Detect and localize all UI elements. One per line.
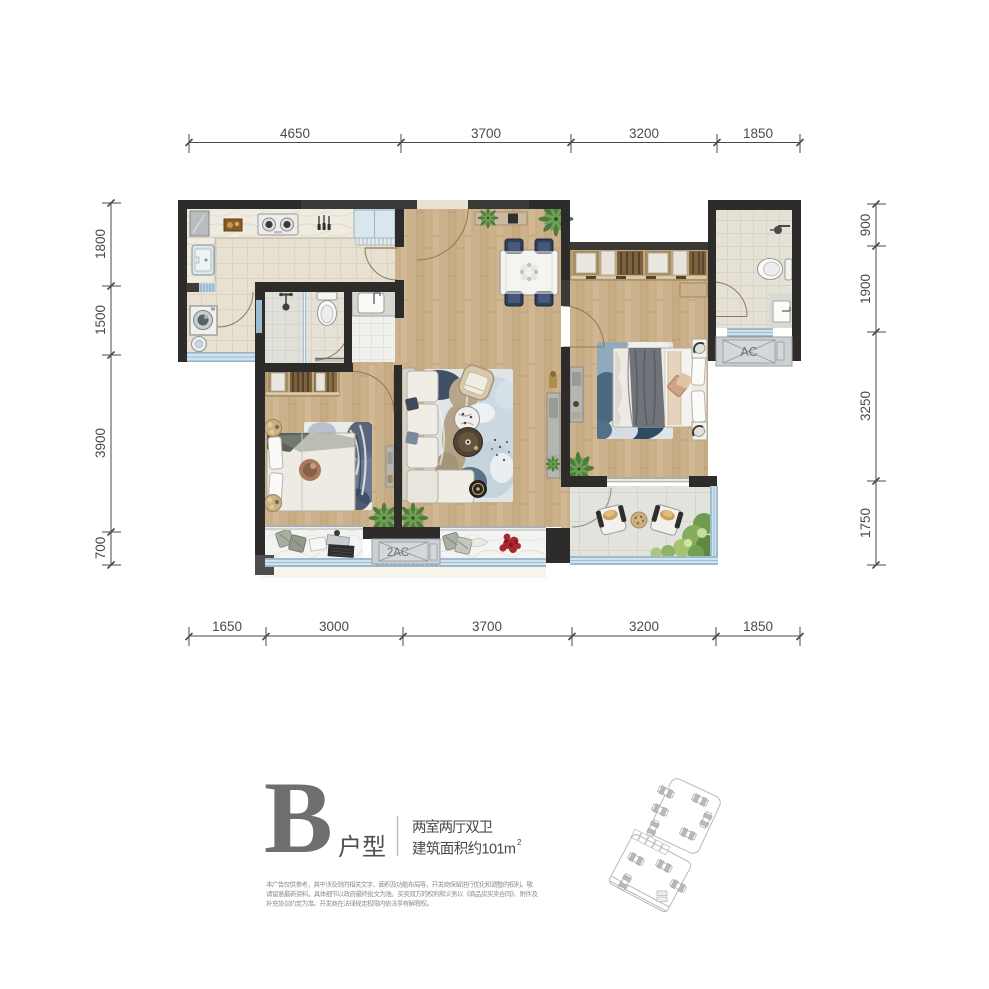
svg-text:3000: 3000: [319, 619, 349, 634]
svg-text:1650: 1650: [212, 619, 242, 634]
svg-text:900: 900: [858, 214, 873, 237]
svg-text:3700: 3700: [471, 126, 501, 141]
svg-text:3250: 3250: [858, 391, 873, 421]
svg-text:3700: 3700: [472, 619, 502, 634]
svg-text:1750: 1750: [858, 508, 873, 538]
svg-text:两室两厅双卫: 两室两厅双卫: [412, 819, 493, 836]
svg-text:2AC: 2AC: [387, 547, 409, 559]
svg-text:建筑面积约101m: 建筑面积约101m: [412, 841, 516, 858]
svg-text:户型: 户型: [338, 834, 386, 861]
svg-text:3200: 3200: [629, 126, 659, 141]
svg-text:本广告仅供参考，其中涉及到的相关文字、面积及功能布局等，开发: 本广告仅供参考，其中涉及到的相关文字、面积及功能布局等，开发商保留进行优化和调整…: [266, 880, 534, 889]
svg-text:4650: 4650: [280, 126, 310, 141]
svg-text:请留意最新资料，具体细节以政府最终批文为准。买卖双方的权利和: 请留意最新资料，具体细节以政府最终批文为准。买卖双方的权利和义务以《商品房买卖合…: [266, 889, 539, 898]
svg-text:AC: AC: [740, 345, 757, 359]
svg-text:1900: 1900: [858, 274, 873, 304]
svg-text:1800: 1800: [93, 229, 108, 259]
svg-text:1850: 1850: [743, 126, 773, 141]
svg-text:1850: 1850: [743, 619, 773, 634]
svg-text:3900: 3900: [93, 428, 108, 458]
svg-text:1500: 1500: [93, 305, 108, 335]
svg-text:700: 700: [93, 537, 108, 560]
svg-text:补充协议约定为准。开发商在法律规定权限内依法享有解释权。: 补充协议约定为准。开发商在法律规定权限内依法享有解释权。: [266, 899, 433, 908]
svg-text:B: B: [264, 761, 333, 875]
svg-text:2: 2: [517, 838, 522, 847]
svg-text:3200: 3200: [629, 619, 659, 634]
